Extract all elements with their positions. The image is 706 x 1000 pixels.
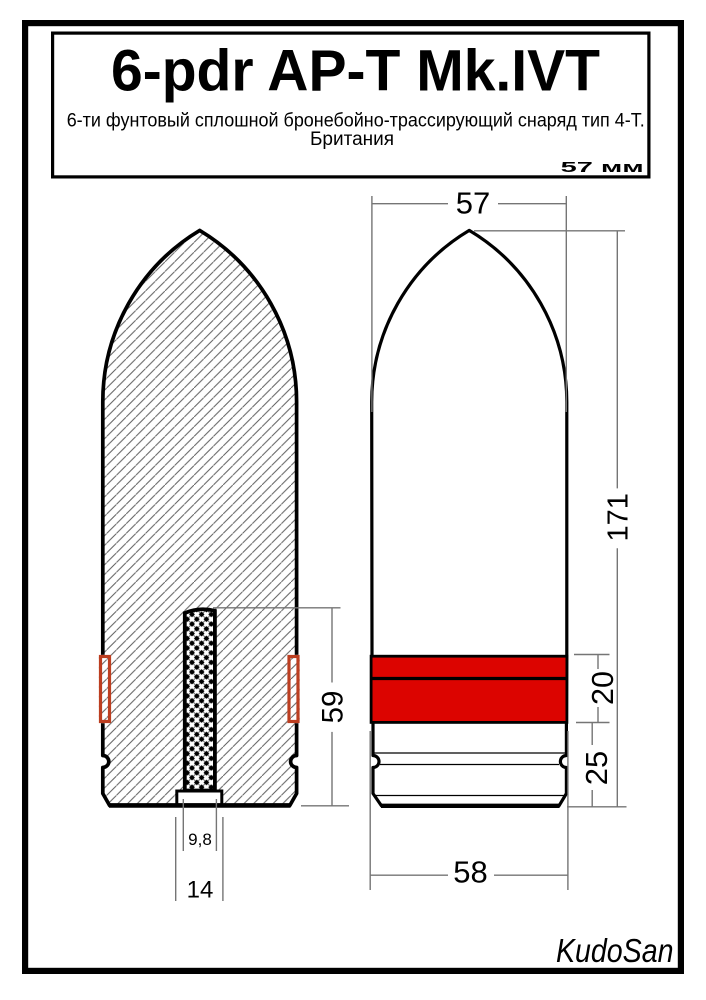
- svg-text:58: 58: [453, 855, 487, 890]
- svg-text:9,8: 9,8: [188, 830, 212, 849]
- svg-text:57 мм: 57 мм: [561, 159, 644, 175]
- svg-text:Британия: Британия: [310, 129, 394, 150]
- svg-text:25: 25: [579, 751, 614, 785]
- svg-text:KudoSan: KudoSan: [556, 932, 674, 969]
- svg-text:171: 171: [603, 493, 635, 541]
- svg-text:20: 20: [586, 671, 620, 705]
- svg-text:14: 14: [187, 877, 214, 904]
- svg-text:6-pdr AP-T Mk.IVT: 6-pdr AP-T Mk.IVT: [111, 38, 600, 103]
- svg-text:57: 57: [456, 186, 490, 221]
- svg-text:59: 59: [316, 691, 349, 724]
